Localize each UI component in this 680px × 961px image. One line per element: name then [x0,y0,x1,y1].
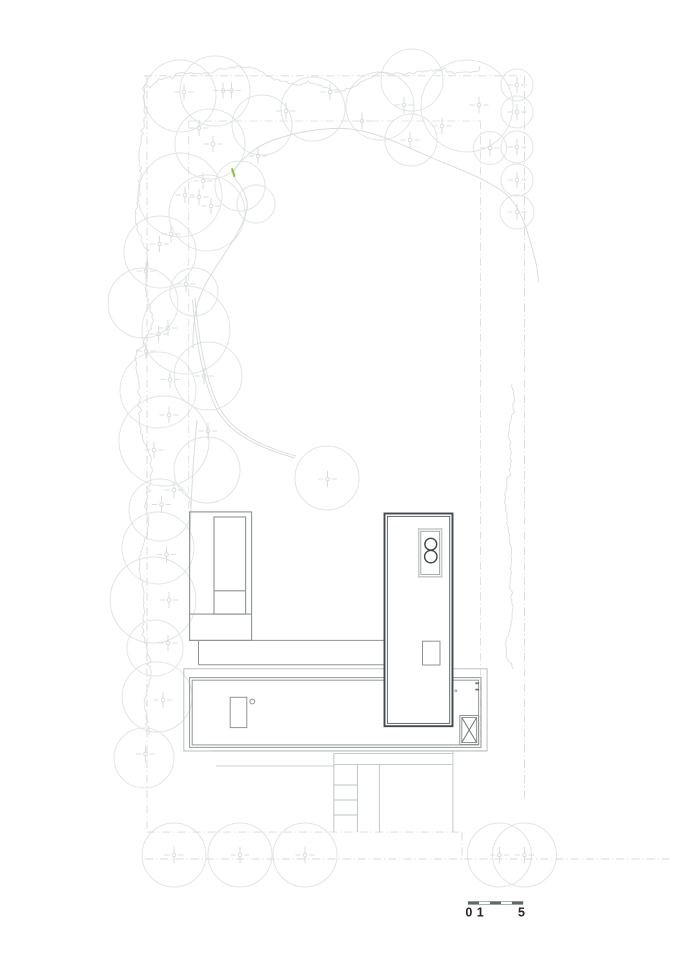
svg-text:5: 5 [518,906,525,920]
svg-text:0: 0 [465,906,472,920]
svg-text:1: 1 [477,906,484,920]
